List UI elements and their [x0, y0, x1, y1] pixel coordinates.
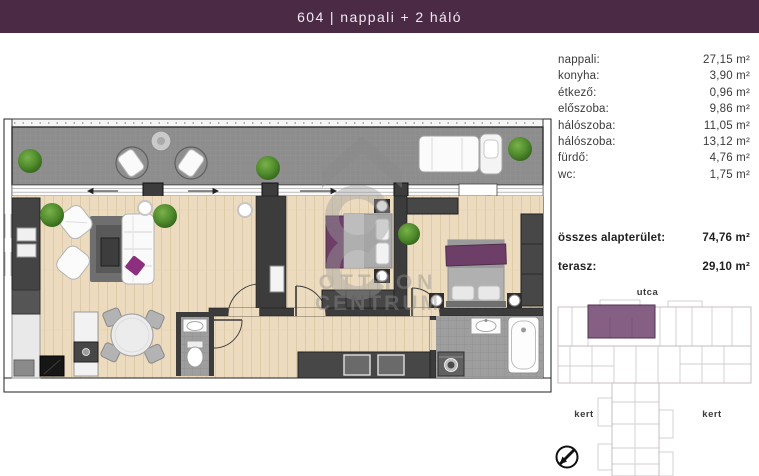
- total-area-value: 74,76 m²: [702, 231, 750, 246]
- room-area: 3,90 m²: [710, 68, 750, 84]
- title-bar: 604 | nappali + 2 háló: [0, 0, 759, 33]
- total-area-label: összes alapterület:: [558, 231, 665, 246]
- room-area: 0,96 m²: [710, 85, 750, 101]
- garden-label-left: kert: [556, 409, 612, 420]
- bed-blanket: [446, 244, 507, 266]
- room-label: wc:: [558, 167, 576, 183]
- terrace-area-row: terasz: 29,10 m²: [558, 260, 750, 275]
- terrace-railing: [12, 119, 543, 127]
- sink: [471, 318, 501, 334]
- wardrobe: [407, 198, 458, 214]
- terrace-area-value: 29,10 m²: [702, 260, 750, 275]
- washing-machine: [438, 352, 464, 376]
- wardrobe: [521, 214, 543, 306]
- sofa: [122, 214, 154, 284]
- room-label: étkező:: [558, 85, 596, 101]
- room-label: fürdő:: [558, 150, 589, 166]
- room-label: hálószoba:: [558, 118, 616, 134]
- room-area: 4,76 m²: [710, 150, 750, 166]
- coffee-table: [101, 238, 119, 266]
- table-row: wc: 1,75 m²: [558, 167, 750, 183]
- total-area-row: összes alapterület: 74,76 m²: [558, 231, 750, 246]
- watermark-line2: CENTRUM: [315, 292, 441, 315]
- room-area: 9,86 m²: [710, 101, 750, 117]
- garden-label-right: kert: [684, 409, 740, 420]
- floorplan-page: OTTHON CENTRUM: [0, 0, 759, 476]
- bottom-wall: [4, 378, 551, 392]
- site-map: [558, 300, 751, 476]
- bathroom: [436, 316, 543, 378]
- room-area: 1,75 m²: [710, 167, 750, 183]
- room-label: hálószoba:: [558, 134, 616, 150]
- table-row: nappali: 27,15 m²: [558, 52, 750, 68]
- table-row: konyha: 3,90 m²: [558, 68, 750, 84]
- room-area: 27,15 m²: [703, 52, 750, 68]
- table-row: fürdő: 4,76 m²: [558, 150, 750, 166]
- table-row: étkező: 0,96 m²: [558, 85, 750, 101]
- table-row: előszoba: 9,86 m²: [558, 101, 750, 117]
- room-label: előszoba:: [558, 101, 609, 117]
- bed: [446, 240, 507, 307]
- page-title: 604 | nappali + 2 háló: [297, 9, 462, 25]
- street-label: utca: [600, 287, 695, 298]
- wc-room: [176, 312, 214, 376]
- terrace-area-label: terasz:: [558, 260, 596, 275]
- toilet: [187, 341, 203, 367]
- unit-location-highlight: [588, 305, 655, 338]
- bedroom-plant-icon: [398, 223, 420, 245]
- compass-north-icon: [557, 447, 578, 468]
- room-label: konyha:: [558, 68, 600, 84]
- totals-block: összes alapterület: 74,76 m² terasz: 29,…: [558, 231, 750, 289]
- room-area-table: nappali: 27,15 m² konyha: 3,90 m² étkező…: [558, 52, 750, 183]
- bathtub: [508, 317, 539, 373]
- hallway-wardrobe: [298, 352, 430, 378]
- room-area: 11,05 m²: [704, 118, 750, 134]
- room-area: 13,12 m²: [703, 134, 750, 150]
- room-label: nappali:: [558, 52, 600, 68]
- stove: [40, 356, 64, 376]
- table-row: hálószoba: 13,12 m²: [558, 134, 750, 150]
- terrace-sunbed: [419, 134, 502, 174]
- table-row: hálószoba: 11,05 m²: [558, 118, 750, 134]
- pocket-door: [270, 266, 284, 292]
- watermark-line1: OTTHON: [319, 271, 438, 294]
